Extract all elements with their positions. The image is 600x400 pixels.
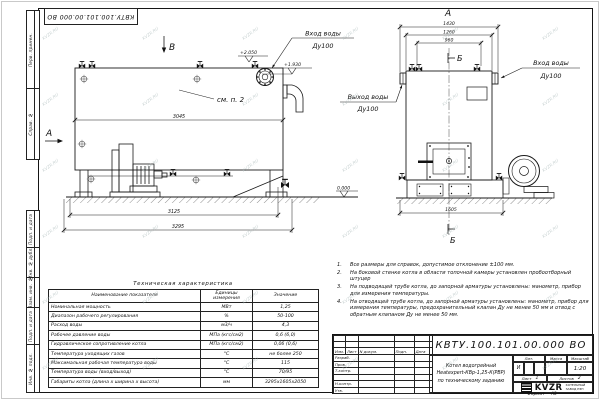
note-item: 1. Все размеры для справок, допустимое о… <box>337 262 590 269</box>
front-view: 1430 1260 960 1605 А <box>340 9 580 245</box>
inlet-dn: Ду100 <box>312 42 334 50</box>
valve-icon <box>474 65 480 72</box>
ground-line <box>396 198 552 204</box>
inlet-callout: Вход воды Ду100 <box>501 59 580 80</box>
drawing-sheet: Перв. примен. Справ. № Подп. и дата Инв.… <box>0 0 600 400</box>
flange-mark-icon <box>78 140 86 148</box>
sheets-value: 2 <box>578 376 581 381</box>
table-row: Габариты котла (длина х ширина х высота)… <box>49 378 319 387</box>
section-mark-b-top: Б <box>448 53 463 63</box>
product-name: Котел водогрейный Heatexpert-КВр-1,25-К(… <box>429 355 513 393</box>
logo-sub-line: ЗАВОД РЭП <box>566 387 584 391</box>
dim-text: 3295 <box>172 224 184 230</box>
valve-icon <box>252 62 258 69</box>
elevation-mark-top: +2.050 <box>238 50 268 62</box>
sheet-label: Лист <box>522 376 532 381</box>
see-note-callout: см. п. 2 <box>179 90 245 104</box>
valve-icon <box>399 174 405 181</box>
staff-label: Утв. <box>334 387 359 394</box>
flange-mark-icon <box>193 75 201 83</box>
burner-motor-unit <box>110 144 167 197</box>
table-row: Рабочее давление воды МПа (кгс/см2) 0,6 … <box>49 331 319 340</box>
revision-table: Изм. Лист N докум. Подп. Дата Разраб. Пр… <box>333 335 433 394</box>
mass-header: Масса <box>545 355 567 362</box>
sheet-cell: Лист 1 <box>513 375 547 382</box>
rev-col: Подп. <box>394 348 414 355</box>
dimension-3295: 3295 <box>62 199 294 233</box>
section-label-b: Б <box>457 54 463 63</box>
table-header: Значение <box>253 290 319 303</box>
table-cell: Номинальная мощность <box>49 303 201 312</box>
inlet-label: Вход воды <box>533 59 569 67</box>
table-row: Гидравлическое сопротивление котла МПа (… <box>49 340 319 349</box>
note-item: 3. На подводящей трубе котла, до запорно… <box>337 284 590 297</box>
sheet-value: 1 <box>535 376 538 381</box>
side-view: 3045 3125 3295 В <box>45 30 358 234</box>
table-cell: Рабочее давление воды <box>49 331 201 340</box>
table-cell: 0,06 (0,6) <box>253 340 319 349</box>
table-cell: МПа (кгс/см2) <box>201 331 253 340</box>
scale-value: 1:20 <box>567 362 593 375</box>
table-cell: Гидравлическое сопротивление котла <box>49 340 201 349</box>
nameplate <box>467 87 487 100</box>
format-value: А3 <box>551 392 557 397</box>
dim-text: 3045 <box>173 114 185 120</box>
table-cell: % <box>201 312 253 321</box>
table-cell: 1,25 <box>253 303 319 312</box>
table-title: Техническая характеристика <box>48 281 318 287</box>
table-cell: Расход воды <box>49 321 201 330</box>
inlet-label: Вход воды <box>305 30 341 38</box>
product-line: Котел водогрейный <box>446 363 496 370</box>
lit-header: Лит. <box>513 355 545 362</box>
note-text: На боковой стенке котла в области топочн… <box>350 270 590 283</box>
logo-subtext: КОТЕЛЬНЫЙ ЗАВОД РЭП <box>566 384 586 391</box>
valve-icon <box>409 65 415 72</box>
dimension-3045: 3045 <box>73 114 285 122</box>
table-cell: °С <box>201 368 253 377</box>
sheets-cell: Листов 2 <box>547 375 593 382</box>
flange-mark-icon <box>192 176 200 184</box>
table-cell: 0,6 (6,0) <box>253 331 319 340</box>
view-label-a: А <box>444 9 451 19</box>
dim-text: 1260 <box>443 30 455 36</box>
rev-col: Изм. <box>334 348 346 355</box>
elevation-text: 0.000 <box>337 186 350 192</box>
valve-icon <box>89 62 95 69</box>
lit-value: И <box>513 362 524 375</box>
table-row: Диапазон рабочего регулирования % 50-100 <box>49 312 319 321</box>
title-block: Изм. Лист N докум. Подп. Дата Разраб. Пр… <box>332 334 594 394</box>
document-number: КВТУ.100.101.00.000 ВО <box>429 335 593 355</box>
logo-text: KVZR <box>535 383 563 393</box>
notes-list: 1. Все размеры для справок, допустимое о… <box>337 262 590 320</box>
dim-text: 960 <box>445 38 454 44</box>
view-direction-b: В <box>162 36 175 53</box>
blower-fan <box>503 156 554 199</box>
view-label-a: А <box>45 129 52 139</box>
rev-col: N докум. <box>358 348 394 355</box>
valve-icon <box>281 179 289 188</box>
note-item: 4. На отводящей трубе котла, до запорной… <box>337 299 590 319</box>
tech-table: Наименование показателя Единицы измерени… <box>48 289 319 388</box>
table-cell: 3295х1605х2050 <box>253 378 319 387</box>
lit-cell <box>524 362 534 375</box>
view-direction-a: А <box>45 129 63 143</box>
note-text: На подводящей трубе котла, до запорной а… <box>350 284 590 297</box>
table-cell: 70/95 <box>253 368 319 377</box>
note-number: 3. <box>337 284 350 297</box>
table-cell: не более 250 <box>253 349 319 358</box>
note-text: Все размеры для справок, допустимое откл… <box>350 262 514 269</box>
outlet-callout: Выход воды Ду100 <box>340 85 402 113</box>
table-cell: Максимальная рабочая температура воды <box>49 359 201 368</box>
view-label-b: В <box>169 43 175 53</box>
note-item: 2. На боковой стенке котла в области топ… <box>337 270 590 283</box>
elevation-mark-ground: 0.000 <box>336 186 358 198</box>
table-cell: м3/ч <box>201 321 253 330</box>
lit-cell <box>534 362 545 375</box>
flange-mark-icon <box>80 75 88 83</box>
note-number: 1. <box>337 262 350 269</box>
table-cell: Диапазон рабочего регулирования <box>49 312 201 321</box>
table-cell: 4,3 <box>253 321 319 330</box>
table-cell: °С <box>201 349 253 358</box>
sheets-label: Листов <box>559 376 574 381</box>
valve-icon <box>496 174 502 181</box>
table-row: Максимальная рабочая температура воды °С… <box>49 359 319 368</box>
table-row: Температура воды (вход/выход) °С 70/95 <box>49 368 319 377</box>
table-header: Наименование показателя <box>49 290 201 303</box>
elevation-text: +1.930 <box>284 62 301 68</box>
table-cell: МПа (кгс/см2) <box>201 340 253 349</box>
note-number: 2. <box>337 270 350 283</box>
support-frame <box>75 170 287 197</box>
table-cell: Температура уходящих газов <box>49 349 201 358</box>
base-frame <box>407 180 503 198</box>
table-cell: Температура воды (вход/выход) <box>49 368 201 377</box>
elevation-text: +2.050 <box>240 50 257 56</box>
see-note-text: см. п. 2 <box>217 96 245 104</box>
format-word: Формат <box>527 392 544 397</box>
table-cell: мм <box>201 378 253 387</box>
dim-text: 1605 <box>445 207 457 213</box>
rev-col: Лист <box>345 348 358 355</box>
product-line: Heatexpert-КВр-1,25-К(РВР) <box>437 370 506 377</box>
product-line: по техническому заданию <box>438 378 505 385</box>
dim-text: 1430 <box>443 21 455 27</box>
outlet-dn: Ду100 <box>357 105 379 113</box>
table-row: Расход воды м3/ч 4,3 <box>49 321 319 330</box>
inlet-dn: Ду100 <box>540 72 562 80</box>
note-number: 4. <box>337 299 350 319</box>
flue-outlet <box>283 85 303 112</box>
format-label: Формат А3 <box>492 392 592 397</box>
table-row: Номинальная мощность МВт 1,25 <box>49 303 319 312</box>
valve-icon <box>79 62 85 69</box>
outlet-label: Выход воды <box>348 93 389 101</box>
table-cell: Габариты котла (длина х ширина х высота) <box>49 378 201 387</box>
table-cell: 115 <box>253 359 319 368</box>
scale-header: Масштаб <box>567 355 593 362</box>
section-label-b: Б <box>450 236 456 245</box>
table-cell: °С <box>201 359 253 368</box>
valve-icon <box>224 170 230 177</box>
dim-text: 3125 <box>168 209 180 215</box>
table-row: Температура уходящих газов °С не более 2… <box>49 349 319 358</box>
note-text: На отводящей трубе котла, до запорной ар… <box>350 299 590 319</box>
table-cell: 50-100 <box>253 312 319 321</box>
valve-icon <box>197 62 203 69</box>
mass-value <box>545 362 567 375</box>
furnace-door <box>418 143 471 180</box>
inlet-flange <box>257 69 274 86</box>
table-cell: МВт <box>201 303 253 312</box>
valve-icon <box>170 170 176 177</box>
ground-line <box>66 197 358 203</box>
table-header: Единицы измерения <box>201 290 253 303</box>
tech-characteristics: Техническая характеристика Наименование … <box>48 281 318 388</box>
